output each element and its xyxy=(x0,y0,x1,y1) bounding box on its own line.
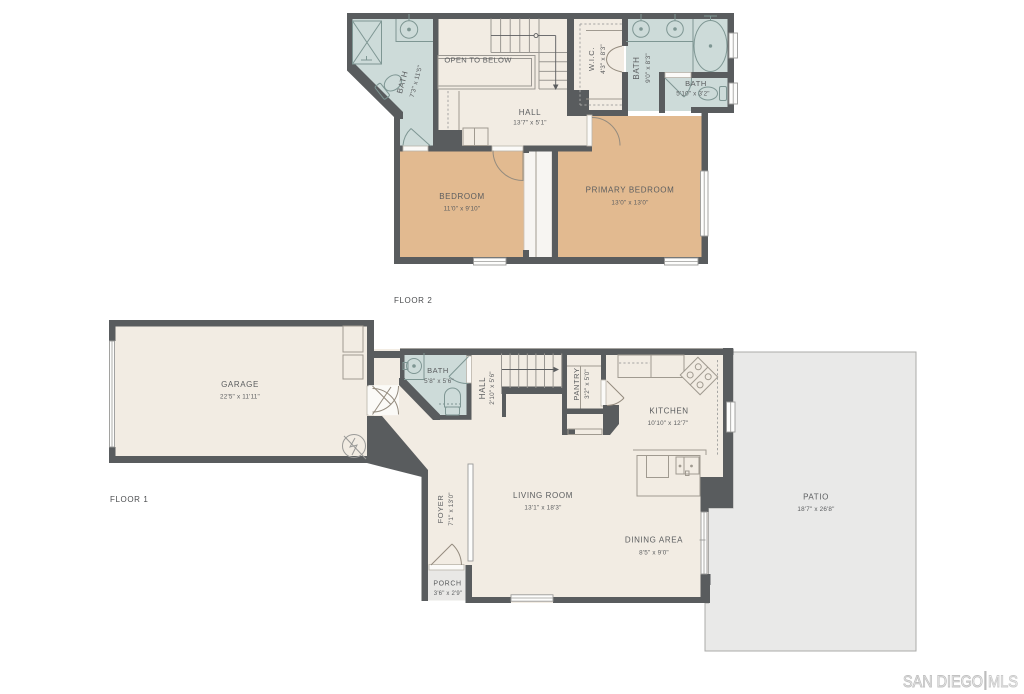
svg-text:FOYER: FOYER xyxy=(436,495,445,524)
svg-text:SAN DIEGO: SAN DIEGO xyxy=(903,672,983,691)
svg-text:OPEN TO BELOW: OPEN TO BELOW xyxy=(444,56,512,65)
svg-text:FLOOR 1: FLOOR 1 xyxy=(110,495,148,504)
svg-text:5'10" x 3'2": 5'10" x 3'2" xyxy=(676,91,709,98)
svg-text:PRIMARY BEDROOM: PRIMARY BEDROOM xyxy=(586,186,675,195)
svg-text:9'0" x 8'3": 9'0" x 8'3" xyxy=(645,53,652,83)
svg-text:8'5" x 9'0": 8'5" x 9'0" xyxy=(639,550,669,557)
svg-text:W.I.C.: W.I.C. xyxy=(587,47,596,71)
svg-text:FLOOR 2: FLOOR 2 xyxy=(394,296,432,305)
svg-text:13'0" x 13'0": 13'0" x 13'0" xyxy=(611,200,648,207)
svg-text:11'0" x 9'10": 11'0" x 9'10" xyxy=(444,206,481,213)
svg-text:PANTRY: PANTRY xyxy=(572,367,581,400)
svg-text:MLS: MLS xyxy=(988,672,1018,691)
svg-text:BATH: BATH xyxy=(427,366,449,375)
svg-text:4'3" x 8'3": 4'3" x 8'3" xyxy=(600,44,607,74)
svg-text:KITCHEN: KITCHEN xyxy=(649,407,688,416)
svg-text:3'2" x 5'0": 3'2" x 5'0" xyxy=(584,369,591,399)
svg-text:DINING AREA: DINING AREA xyxy=(625,536,683,545)
svg-text:10'10" x 12'7": 10'10" x 12'7" xyxy=(648,420,689,427)
svg-text:18'7" x 26'8": 18'7" x 26'8" xyxy=(797,506,834,513)
svg-text:3'6" x 2'9": 3'6" x 2'9" xyxy=(434,591,462,597)
svg-text:7'1" x 13'0": 7'1" x 13'0" xyxy=(448,492,455,525)
svg-text:22'5" x 11'11": 22'5" x 11'11" xyxy=(220,394,260,401)
svg-text:13'7" x 5'1": 13'7" x 5'1" xyxy=(513,120,546,127)
svg-text:2'10" x 5'6": 2'10" x 5'6" xyxy=(489,371,496,404)
svg-text:PATIO: PATIO xyxy=(803,493,829,502)
svg-text:5'8" x 5'6": 5'8" x 5'6" xyxy=(424,378,454,385)
svg-text:BATH: BATH xyxy=(632,56,641,79)
svg-text:13'1" x 18'3": 13'1" x 18'3" xyxy=(524,505,561,512)
svg-text:LIVING ROOM: LIVING ROOM xyxy=(513,491,573,500)
svg-text:HALL: HALL xyxy=(519,108,541,117)
svg-text:HALL: HALL xyxy=(478,377,487,399)
svg-text:BEDROOM: BEDROOM xyxy=(439,192,485,201)
svg-text:GARAGE: GARAGE xyxy=(221,380,259,389)
svg-text:PORCH: PORCH xyxy=(433,581,461,588)
svg-text:BATH: BATH xyxy=(685,79,707,88)
